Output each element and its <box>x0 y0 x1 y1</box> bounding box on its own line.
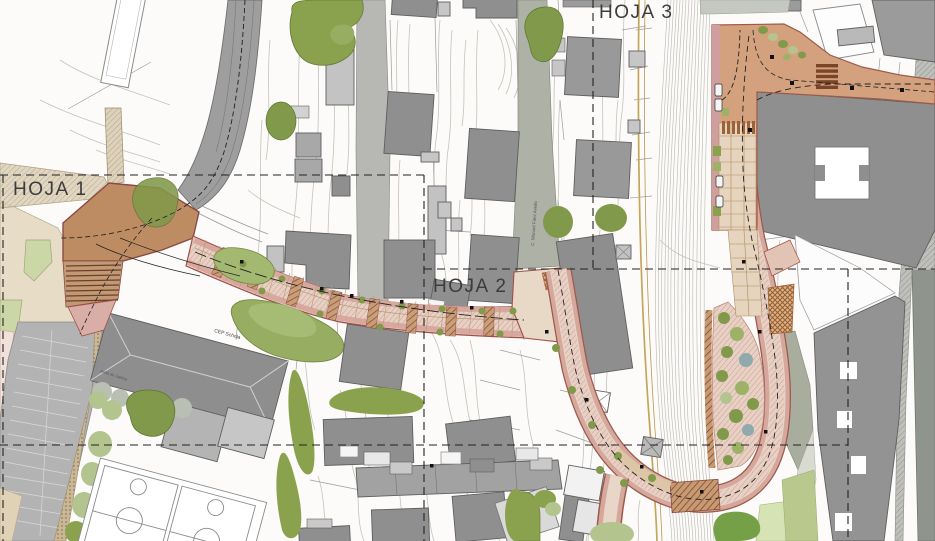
svg-text:HOJA 2: HOJA 2 <box>433 276 507 297</box>
svg-text:HOJA 3: HOJA 3 <box>599 2 673 23</box>
svg-text:HOJA 1: HOJA 1 <box>13 179 87 200</box>
